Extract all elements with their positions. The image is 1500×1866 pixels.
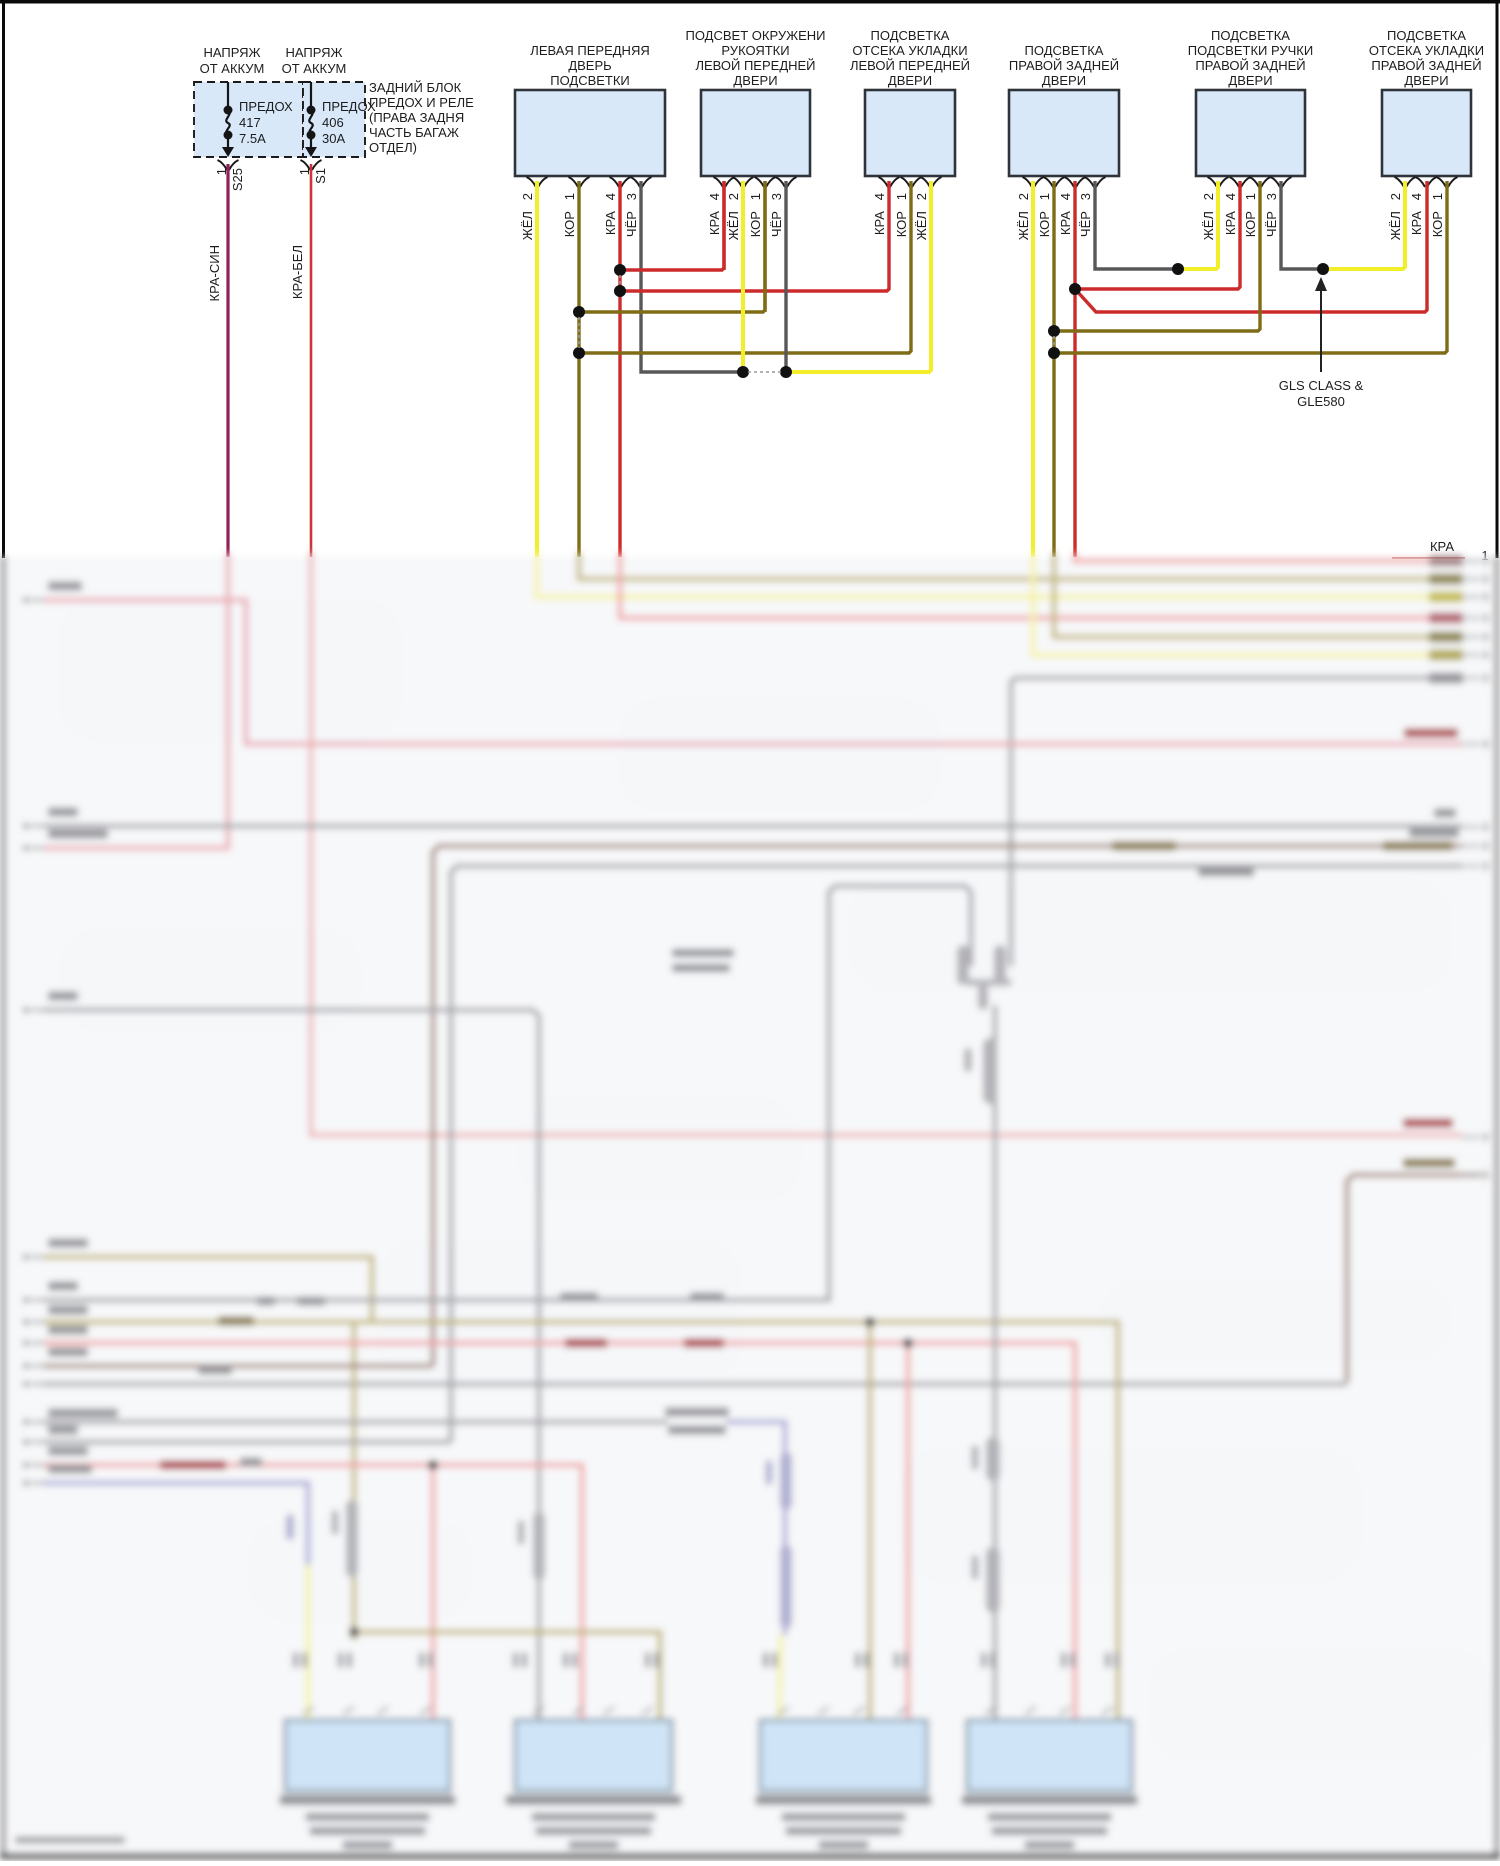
svg-text:КРА-СИН: КРА-СИН bbox=[207, 245, 222, 302]
svg-text:S1: S1 bbox=[313, 168, 328, 184]
svg-text:ОТ АККУМ: ОТ АККУМ bbox=[200, 61, 265, 76]
svg-text:ЖЁЛ 2: ЖЁЛ 2 bbox=[1201, 193, 1216, 240]
svg-text:ДВЕРИ: ДВЕРИ bbox=[1228, 73, 1272, 88]
svg-text:КОР 1: КОР 1 bbox=[748, 193, 763, 237]
svg-text:30A: 30A bbox=[322, 131, 345, 146]
svg-text:ПОДСВЕТКИ РУЧКИ: ПОДСВЕТКИ РУЧКИ bbox=[1188, 43, 1313, 58]
svg-text:417: 417 bbox=[239, 115, 261, 130]
svg-text:ПРАВОЙ ЗАДНЕЙ: ПРАВОЙ ЗАДНЕЙ bbox=[1195, 58, 1305, 73]
svg-text:ОТСЕКА УКЛАДКИ: ОТСЕКА УКЛАДКИ bbox=[1369, 43, 1484, 58]
svg-text:ЖЁЛ 2: ЖЁЛ 2 bbox=[726, 193, 741, 240]
svg-text:ДВЕРИ: ДВЕРИ bbox=[1404, 73, 1448, 88]
svg-text:S25: S25 bbox=[230, 168, 245, 191]
svg-text:ДВЕРИ: ДВЕРИ bbox=[888, 73, 932, 88]
svg-text:ПРАВОЙ ЗАДНЕЙ: ПРАВОЙ ЗАДНЕЙ bbox=[1009, 58, 1119, 73]
svg-text:КОР 1: КОР 1 bbox=[894, 193, 909, 237]
svg-text:(ПРАВА ЗАДНЯ: (ПРАВА ЗАДНЯ bbox=[369, 110, 464, 125]
svg-text:ОТСЕКА УКЛАДКИ: ОТСЕКА УКЛАДКИ bbox=[852, 43, 967, 58]
svg-text:КРА 4: КРА 4 bbox=[1409, 193, 1424, 235]
svg-text:НАПРЯЖ: НАПРЯЖ bbox=[285, 45, 342, 60]
svg-text:КОР 1: КОР 1 bbox=[1243, 193, 1258, 237]
svg-text:КРА-БЕЛ: КРА-БЕЛ bbox=[290, 245, 305, 299]
svg-text:ЧАСТЬ БАГАЖ: ЧАСТЬ БАГАЖ bbox=[369, 125, 459, 140]
svg-text:ЛЕВОЙ ПЕРЕДНЕЙ: ЛЕВОЙ ПЕРЕДНЕЙ bbox=[695, 58, 815, 73]
svg-text:РУКОЯТКИ: РУКОЯТКИ bbox=[721, 43, 789, 58]
svg-text:КРА 4: КРА 4 bbox=[1058, 193, 1073, 235]
svg-text:ПОДСВЕТКА: ПОДСВЕТКА bbox=[1025, 43, 1104, 58]
svg-text:КРА 4: КРА 4 bbox=[707, 193, 722, 235]
svg-text:ЧЁР 3: ЧЁР 3 bbox=[1264, 193, 1279, 237]
svg-text:ПРЕДОХ И РЕЛЕ: ПРЕДОХ И РЕЛЕ bbox=[369, 95, 474, 110]
svg-text:КОР 1: КОР 1 bbox=[562, 193, 577, 237]
svg-text:GLS CLASS &: GLS CLASS & bbox=[1279, 378, 1364, 393]
svg-text:ЧЁР 3: ЧЁР 3 bbox=[624, 193, 639, 237]
svg-text:ЗАДНИЙ БЛОК: ЗАДНИЙ БЛОК bbox=[369, 80, 462, 95]
svg-text:КРА 4: КРА 4 bbox=[872, 193, 887, 235]
svg-text:ЧЁР 3: ЧЁР 3 bbox=[769, 193, 784, 237]
svg-text:ПОДСВЕТКИ: ПОДСВЕТКИ bbox=[550, 73, 630, 88]
svg-text:ДВЕРИ: ДВЕРИ bbox=[733, 73, 777, 88]
svg-text:ЛЕВАЯ ПЕРЕДНЯЯ: ЛЕВАЯ ПЕРЕДНЯЯ bbox=[530, 43, 649, 58]
svg-text:ОТ АККУМ: ОТ АККУМ bbox=[282, 61, 347, 76]
svg-text:НАПРЯЖ: НАПРЯЖ bbox=[203, 45, 260, 60]
svg-text:ПОДСВЕТКА: ПОДСВЕТКА bbox=[871, 28, 950, 43]
svg-text:ПОДСВЕТКА: ПОДСВЕТКА bbox=[1387, 28, 1466, 43]
svg-text:ПРЕДОХ: ПРЕДОХ bbox=[239, 99, 293, 114]
svg-text:ПРЕДОХ: ПРЕДОХ bbox=[322, 99, 376, 114]
svg-text:406: 406 bbox=[322, 115, 344, 130]
svg-text:ДВЕРЬ: ДВЕРЬ bbox=[568, 58, 611, 73]
svg-text:ПОДСВЕТКА: ПОДСВЕТКА bbox=[1211, 28, 1290, 43]
svg-text:КРА 4: КРА 4 bbox=[603, 193, 618, 235]
svg-text:КОР 1: КОР 1 bbox=[1037, 193, 1052, 237]
svg-text:ПОДСВЕТ ОКРУЖЕНИ: ПОДСВЕТ ОКРУЖЕНИ bbox=[686, 28, 826, 43]
svg-text:ЖЁЛ 2: ЖЁЛ 2 bbox=[520, 193, 535, 240]
svg-text:ЛЕВОЙ ПЕРЕДНЕЙ: ЛЕВОЙ ПЕРЕДНЕЙ bbox=[850, 58, 970, 73]
svg-text:ЧЁР 3: ЧЁР 3 bbox=[1078, 193, 1093, 237]
svg-text:КРА: КРА bbox=[1430, 539, 1454, 554]
svg-text:ПРАВОЙ ЗАДНЕЙ: ПРАВОЙ ЗАДНЕЙ bbox=[1371, 58, 1481, 73]
svg-text:ЖЁЛ 2: ЖЁЛ 2 bbox=[1016, 193, 1031, 240]
svg-text:ОТДЕЛ): ОТДЕЛ) bbox=[369, 140, 417, 155]
svg-text:КОР 1: КОР 1 bbox=[1430, 193, 1445, 237]
svg-text:ЖЁЛ 2: ЖЁЛ 2 bbox=[1388, 193, 1403, 240]
svg-text:КРА 4: КРА 4 bbox=[1223, 193, 1238, 235]
svg-text:GLE580: GLE580 bbox=[1297, 394, 1345, 409]
svg-text:ДВЕРИ: ДВЕРИ bbox=[1042, 73, 1086, 88]
svg-text:ЖЁЛ 2: ЖЁЛ 2 bbox=[914, 193, 929, 240]
svg-text:7.5A: 7.5A bbox=[239, 131, 266, 146]
